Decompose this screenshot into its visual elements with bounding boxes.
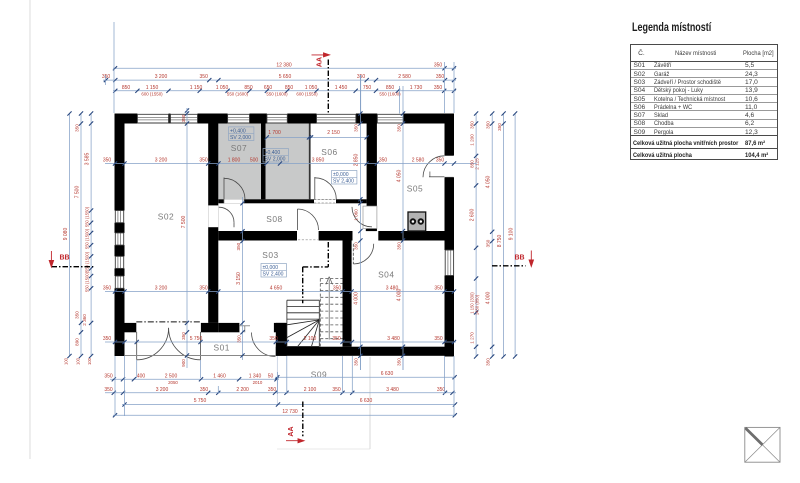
svg-text:3 200: 3 200 bbox=[156, 387, 169, 393]
svg-text:BB: BB bbox=[514, 255, 524, 262]
svg-text:100: 100 bbox=[87, 357, 92, 365]
svg-text:550 (1550): 550 (1550) bbox=[84, 206, 89, 227]
svg-text:1 460: 1 460 bbox=[213, 373, 226, 379]
svg-text:1 150: 1 150 bbox=[146, 85, 159, 91]
svg-text:350: 350 bbox=[74, 311, 79, 319]
svg-text:350: 350 bbox=[486, 239, 491, 247]
svg-text:2 580: 2 580 bbox=[398, 74, 411, 80]
svg-text:2 850: 2 850 bbox=[354, 154, 360, 167]
svg-text:2 125: 2 125 bbox=[474, 158, 479, 170]
svg-text:6 630: 6 630 bbox=[381, 371, 394, 377]
svg-text:350: 350 bbox=[354, 242, 359, 250]
svg-text:650: 650 bbox=[264, 85, 273, 91]
svg-text:9 100: 9 100 bbox=[509, 228, 515, 241]
svg-text:350: 350 bbox=[436, 74, 445, 80]
svg-text:S03: S03 bbox=[262, 250, 278, 260]
svg-text:2 360: 2 360 bbox=[82, 314, 87, 326]
svg-text:4 000: 4 000 bbox=[396, 289, 402, 302]
svg-text:3 150: 3 150 bbox=[236, 272, 242, 285]
svg-text:350: 350 bbox=[396, 358, 401, 366]
svg-text:350: 350 bbox=[269, 336, 278, 342]
svg-text:350: 350 bbox=[181, 114, 186, 122]
svg-text:350: 350 bbox=[102, 74, 111, 80]
svg-text:850: 850 bbox=[285, 85, 294, 91]
svg-text:350: 350 bbox=[103, 286, 112, 292]
svg-text:350: 350 bbox=[200, 74, 209, 80]
svg-text:S07: S07 bbox=[231, 143, 247, 153]
svg-text:3 480: 3 480 bbox=[386, 387, 399, 393]
svg-text:2010: 2010 bbox=[253, 380, 263, 385]
svg-text:9 080: 9 080 bbox=[63, 228, 69, 241]
svg-text:350: 350 bbox=[200, 387, 209, 393]
svg-text:1 340: 1 340 bbox=[249, 373, 262, 379]
svg-text:850: 850 bbox=[244, 85, 253, 91]
svg-text:5 750: 5 750 bbox=[190, 336, 203, 342]
svg-text:350: 350 bbox=[486, 121, 491, 129]
svg-text:1 730: 1 730 bbox=[410, 85, 423, 91]
svg-text:1 050: 1 050 bbox=[216, 85, 229, 91]
svg-text:350: 350 bbox=[103, 158, 112, 164]
svg-text:2 100: 2 100 bbox=[304, 387, 317, 393]
svg-text:400: 400 bbox=[137, 373, 146, 379]
svg-text:3 200: 3 200 bbox=[155, 158, 168, 164]
svg-text:2 500: 2 500 bbox=[165, 373, 178, 379]
svg-text:4 050: 4 050 bbox=[396, 170, 402, 183]
svg-text:600 (1550): 600 (1550) bbox=[141, 92, 163, 97]
svg-text:SV 2,400: SV 2,400 bbox=[263, 272, 284, 278]
svg-text:S01: S01 bbox=[213, 343, 229, 353]
svg-text:±0,000: ±0,000 bbox=[263, 265, 279, 271]
svg-text:7 500: 7 500 bbox=[74, 186, 80, 199]
svg-text:AA: AA bbox=[317, 57, 324, 67]
svg-text:350: 350 bbox=[470, 121, 475, 129]
svg-text:350: 350 bbox=[436, 158, 445, 164]
svg-text:S02: S02 bbox=[158, 212, 174, 222]
svg-text:350: 350 bbox=[103, 336, 112, 342]
svg-text:S09: S09 bbox=[311, 369, 327, 379]
svg-text:350: 350 bbox=[104, 387, 113, 393]
svg-text:850: 850 bbox=[122, 85, 131, 91]
svg-text:350: 350 bbox=[332, 336, 341, 342]
svg-text:890: 890 bbox=[74, 338, 79, 346]
svg-text:7 500: 7 500 bbox=[181, 216, 187, 229]
svg-text:350: 350 bbox=[357, 74, 366, 80]
svg-text:5 650: 5 650 bbox=[279, 74, 292, 80]
svg-text:4 050: 4 050 bbox=[486, 176, 492, 189]
svg-text:350: 350 bbox=[268, 387, 277, 393]
svg-text:500: 500 bbox=[250, 158, 259, 164]
svg-text:350: 350 bbox=[236, 242, 241, 250]
svg-text:100: 100 bbox=[64, 357, 69, 365]
svg-text:4 650: 4 650 bbox=[270, 286, 283, 292]
svg-text:8 750: 8 750 bbox=[497, 235, 503, 248]
svg-text:600 (1550): 600 (1550) bbox=[296, 92, 318, 97]
svg-text:350: 350 bbox=[437, 387, 446, 393]
svg-text:350: 350 bbox=[104, 373, 113, 379]
svg-text:2 580: 2 580 bbox=[412, 158, 425, 164]
svg-text:1 450: 1 450 bbox=[335, 85, 348, 91]
svg-text:3 200: 3 200 bbox=[155, 286, 168, 292]
svg-text:350: 350 bbox=[237, 335, 242, 343]
svg-text:1 150: 1 150 bbox=[190, 85, 203, 91]
svg-text:350: 350 bbox=[181, 332, 186, 340]
svg-text:550 (1600): 550 (1600) bbox=[266, 92, 288, 97]
svg-text:1 200: 1 200 bbox=[470, 134, 475, 146]
svg-text:12 380: 12 380 bbox=[276, 62, 292, 68]
svg-text:AA: AA bbox=[288, 426, 295, 436]
svg-text:2 100: 2 100 bbox=[304, 336, 317, 342]
svg-text:S08: S08 bbox=[266, 214, 282, 224]
svg-text:350: 350 bbox=[354, 124, 359, 132]
svg-text:2 600: 2 600 bbox=[470, 209, 476, 222]
svg-text:350: 350 bbox=[434, 286, 443, 292]
svg-text:3 850: 3 850 bbox=[312, 158, 325, 164]
svg-text:350: 350 bbox=[199, 286, 208, 292]
svg-text:3 585: 3 585 bbox=[84, 153, 90, 166]
svg-text:3 480: 3 480 bbox=[387, 336, 400, 342]
svg-text:350: 350 bbox=[199, 158, 208, 164]
svg-text:550 (1500): 550 (1500) bbox=[84, 228, 89, 249]
svg-text:350: 350 bbox=[396, 242, 401, 250]
svg-text:3 200: 3 200 bbox=[155, 74, 168, 80]
svg-text:+0,400: +0,400 bbox=[230, 128, 246, 134]
svg-text:S06: S06 bbox=[321, 147, 337, 157]
svg-text:S04: S04 bbox=[378, 270, 394, 280]
svg-text:SV 2,400: SV 2,400 bbox=[333, 179, 354, 185]
svg-text:900: 900 bbox=[181, 359, 186, 367]
svg-text:+0,400: +0,400 bbox=[265, 150, 281, 156]
svg-text:350: 350 bbox=[332, 387, 341, 393]
svg-text:6 630: 6 630 bbox=[360, 398, 373, 404]
svg-text:1450 (850): 1450 (850) bbox=[474, 294, 479, 315]
svg-text:4 000: 4 000 bbox=[486, 292, 492, 305]
svg-text:550 (1500): 550 (1500) bbox=[84, 251, 89, 272]
svg-text:50: 50 bbox=[268, 373, 274, 379]
svg-text:350: 350 bbox=[354, 358, 359, 366]
svg-text:1 270: 1 270 bbox=[470, 332, 475, 344]
svg-text:5 750: 5 750 bbox=[194, 398, 207, 404]
svg-text:350: 350 bbox=[486, 358, 491, 366]
svg-text:350: 350 bbox=[396, 124, 401, 132]
svg-text:1 050: 1 050 bbox=[305, 85, 318, 91]
svg-text:850: 850 bbox=[386, 85, 395, 91]
svg-text:550 (1500): 550 (1500) bbox=[84, 271, 89, 292]
svg-text:750: 750 bbox=[363, 85, 372, 91]
svg-text:350: 350 bbox=[497, 123, 502, 131]
svg-text:1 700: 1 700 bbox=[268, 130, 281, 136]
svg-text:4 000: 4 000 bbox=[354, 292, 360, 305]
svg-text:1 060: 1 060 bbox=[354, 209, 359, 221]
svg-text:350: 350 bbox=[333, 286, 342, 292]
svg-text:BB: BB bbox=[59, 255, 69, 262]
svg-text:350: 350 bbox=[434, 336, 443, 342]
svg-text:2 200: 2 200 bbox=[236, 387, 249, 393]
svg-text:12 730: 12 730 bbox=[282, 409, 298, 415]
svg-text:1 800: 1 800 bbox=[228, 158, 241, 164]
svg-text:350: 350 bbox=[434, 62, 443, 68]
svg-text:100: 100 bbox=[75, 357, 80, 365]
svg-text:350: 350 bbox=[74, 124, 79, 132]
svg-text:550 (1600): 550 (1600) bbox=[227, 92, 249, 97]
svg-text:350: 350 bbox=[434, 85, 443, 91]
svg-text:±0,000: ±0,000 bbox=[333, 172, 349, 178]
svg-text:550 (1600): 550 (1600) bbox=[379, 92, 401, 97]
svg-text:2 150: 2 150 bbox=[327, 130, 340, 136]
svg-text:2050: 2050 bbox=[168, 380, 178, 385]
svg-text:S05: S05 bbox=[407, 184, 423, 194]
svg-text:350: 350 bbox=[379, 158, 388, 164]
svg-text:SV 2,000: SV 2,000 bbox=[230, 135, 251, 141]
